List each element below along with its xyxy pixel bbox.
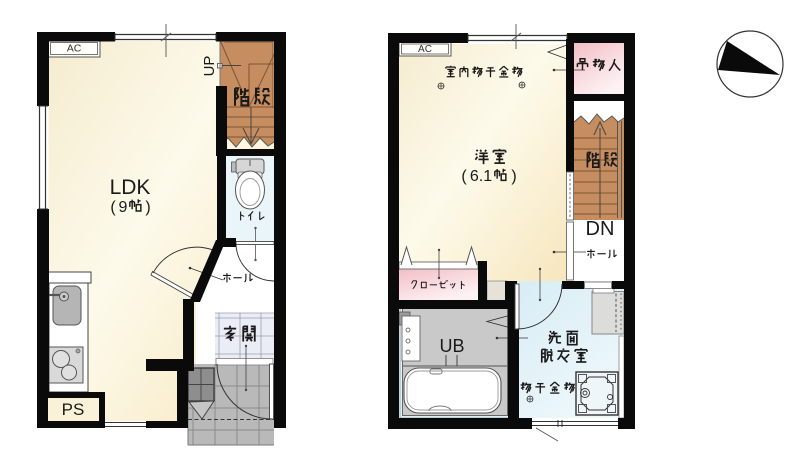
- svg-text:6.1: 6.1: [470, 168, 492, 185]
- svg-text:PS: PS: [62, 400, 85, 419]
- svg-text:(: (: [110, 199, 116, 216]
- svg-text:): ): [511, 168, 516, 185]
- svg-text:AC: AC: [67, 43, 82, 55]
- svg-text:UB: UB: [439, 336, 464, 356]
- svg-text:): ): [145, 199, 150, 216]
- svg-text:(: (: [461, 168, 467, 185]
- svg-text:9: 9: [119, 199, 128, 216]
- svg-text:LDK: LDK: [110, 176, 151, 199]
- svg-text:DN: DN: [586, 218, 615, 240]
- svg-text:UP: UP: [201, 56, 218, 77]
- svg-text:AC: AC: [418, 44, 432, 55]
